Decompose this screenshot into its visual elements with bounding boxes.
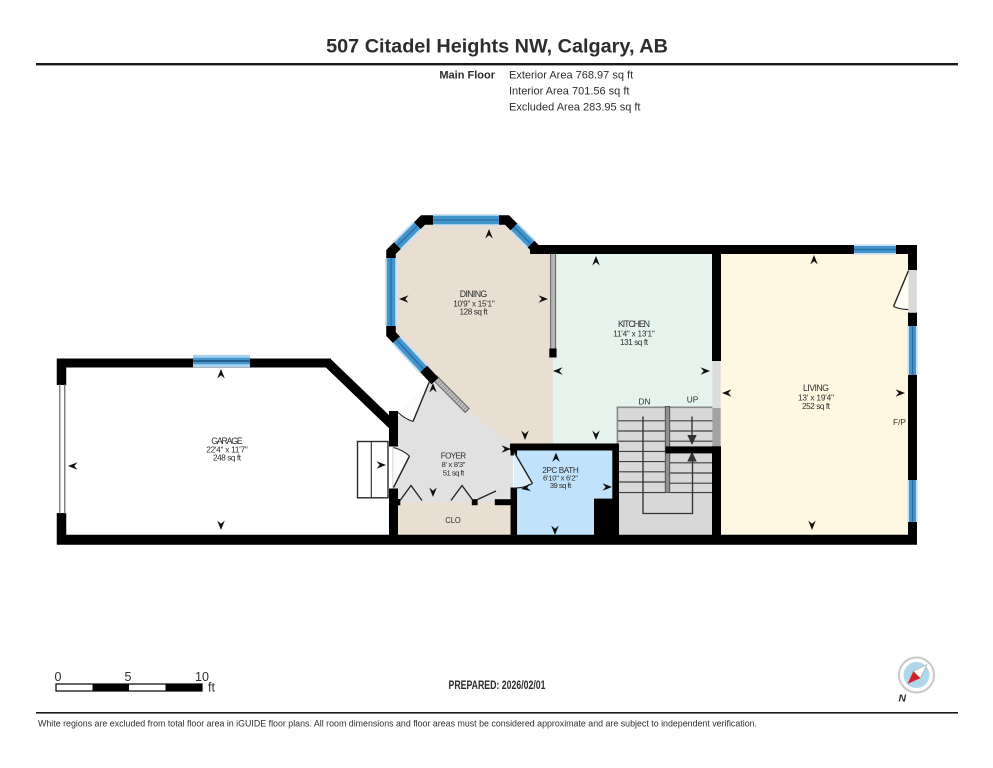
svg-text:51 sq ft: 51 sq ft <box>443 468 465 477</box>
svg-text:White regions are excluded fro: White regions are excluded from total fl… <box>38 718 757 729</box>
svg-text:UP: UP <box>687 395 699 405</box>
svg-text:F/P: F/P <box>893 417 906 427</box>
svg-text:Interior Area 701.56 sq ft: Interior Area 701.56 sq ft <box>509 86 629 98</box>
svg-text:0: 0 <box>55 670 62 684</box>
svg-text:DN: DN <box>639 396 651 406</box>
svg-text:5: 5 <box>125 670 132 684</box>
svg-text:10: 10 <box>195 670 209 684</box>
svg-text:N: N <box>899 693 907 705</box>
svg-text:PREPARED: 2026/02/01: PREPARED: 2026/02/01 <box>449 680 546 692</box>
svg-text:248 sq ft: 248 sq ft <box>213 454 242 463</box>
svg-text:507 Citadel Heights NW, Calgar: 507 Citadel Heights NW, Calgary, AB <box>326 36 668 58</box>
svg-text:131 sq ft: 131 sq ft <box>620 338 649 347</box>
svg-text:LIVING: LIVING <box>803 383 829 393</box>
svg-text:Excluded Area 283.95 sq ft: Excluded Area 283.95 sq ft <box>509 102 640 114</box>
svg-text:DINING: DINING <box>460 289 488 299</box>
svg-text:252 sq ft: 252 sq ft <box>802 402 831 411</box>
svg-text:Main Floor: Main Floor <box>439 69 495 81</box>
svg-text:Exterior Area 768.97 sq ft: Exterior Area 768.97 sq ft <box>509 69 633 81</box>
svg-text:KITCHEN: KITCHEN <box>618 319 650 329</box>
svg-text:128 sq ft: 128 sq ft <box>460 307 489 316</box>
svg-text:CLO: CLO <box>445 515 461 525</box>
svg-text:GARAGE: GARAGE <box>211 436 243 446</box>
svg-text:ft: ft <box>208 681 215 695</box>
svg-text:39 sq ft: 39 sq ft <box>550 481 572 490</box>
